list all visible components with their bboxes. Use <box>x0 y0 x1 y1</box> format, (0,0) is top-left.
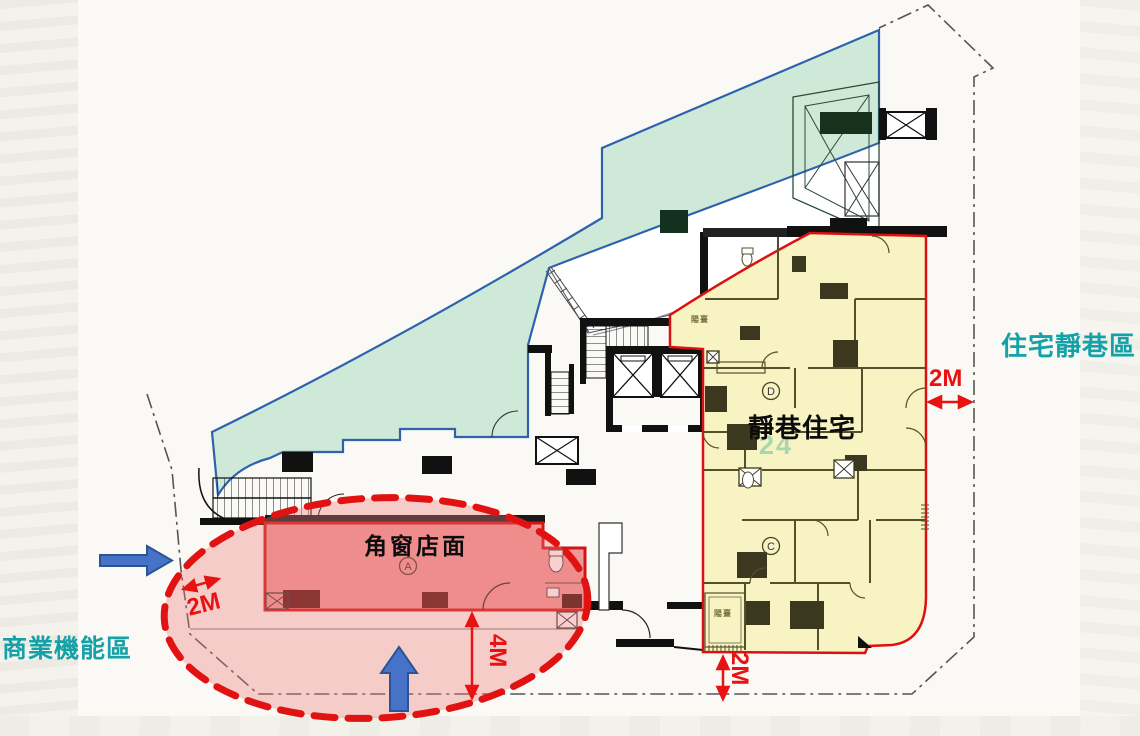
dim-label-4m: 4M <box>485 634 510 667</box>
label-quiet-residence: 靜巷住宅 <box>748 415 856 442</box>
balcony-label-top: 陽臺 <box>691 316 709 324</box>
dim-arrow-right-2m-icon <box>929 397 971 408</box>
dim-label-bottom-2m: 2M <box>727 652 752 685</box>
zone-label-residential-street: 住宅靜巷區 <box>1001 333 1136 360</box>
unit-label-d: D <box>767 386 775 398</box>
floor-plan-svg: A D C <box>0 0 1140 736</box>
dim-label-right-2m: 2M <box>929 366 962 391</box>
site-plan-stage: A D C <box>0 0 1140 736</box>
label-corner-shop: 角窗店面 <box>364 534 468 558</box>
unit-label-c: C <box>767 541 775 553</box>
entry-arrow-left-icon <box>100 546 172 575</box>
zone-label-commercial: 商業機能區 <box>2 636 132 662</box>
balcony-label-bottom: 陽臺 <box>714 610 732 618</box>
planter-block <box>660 210 688 233</box>
